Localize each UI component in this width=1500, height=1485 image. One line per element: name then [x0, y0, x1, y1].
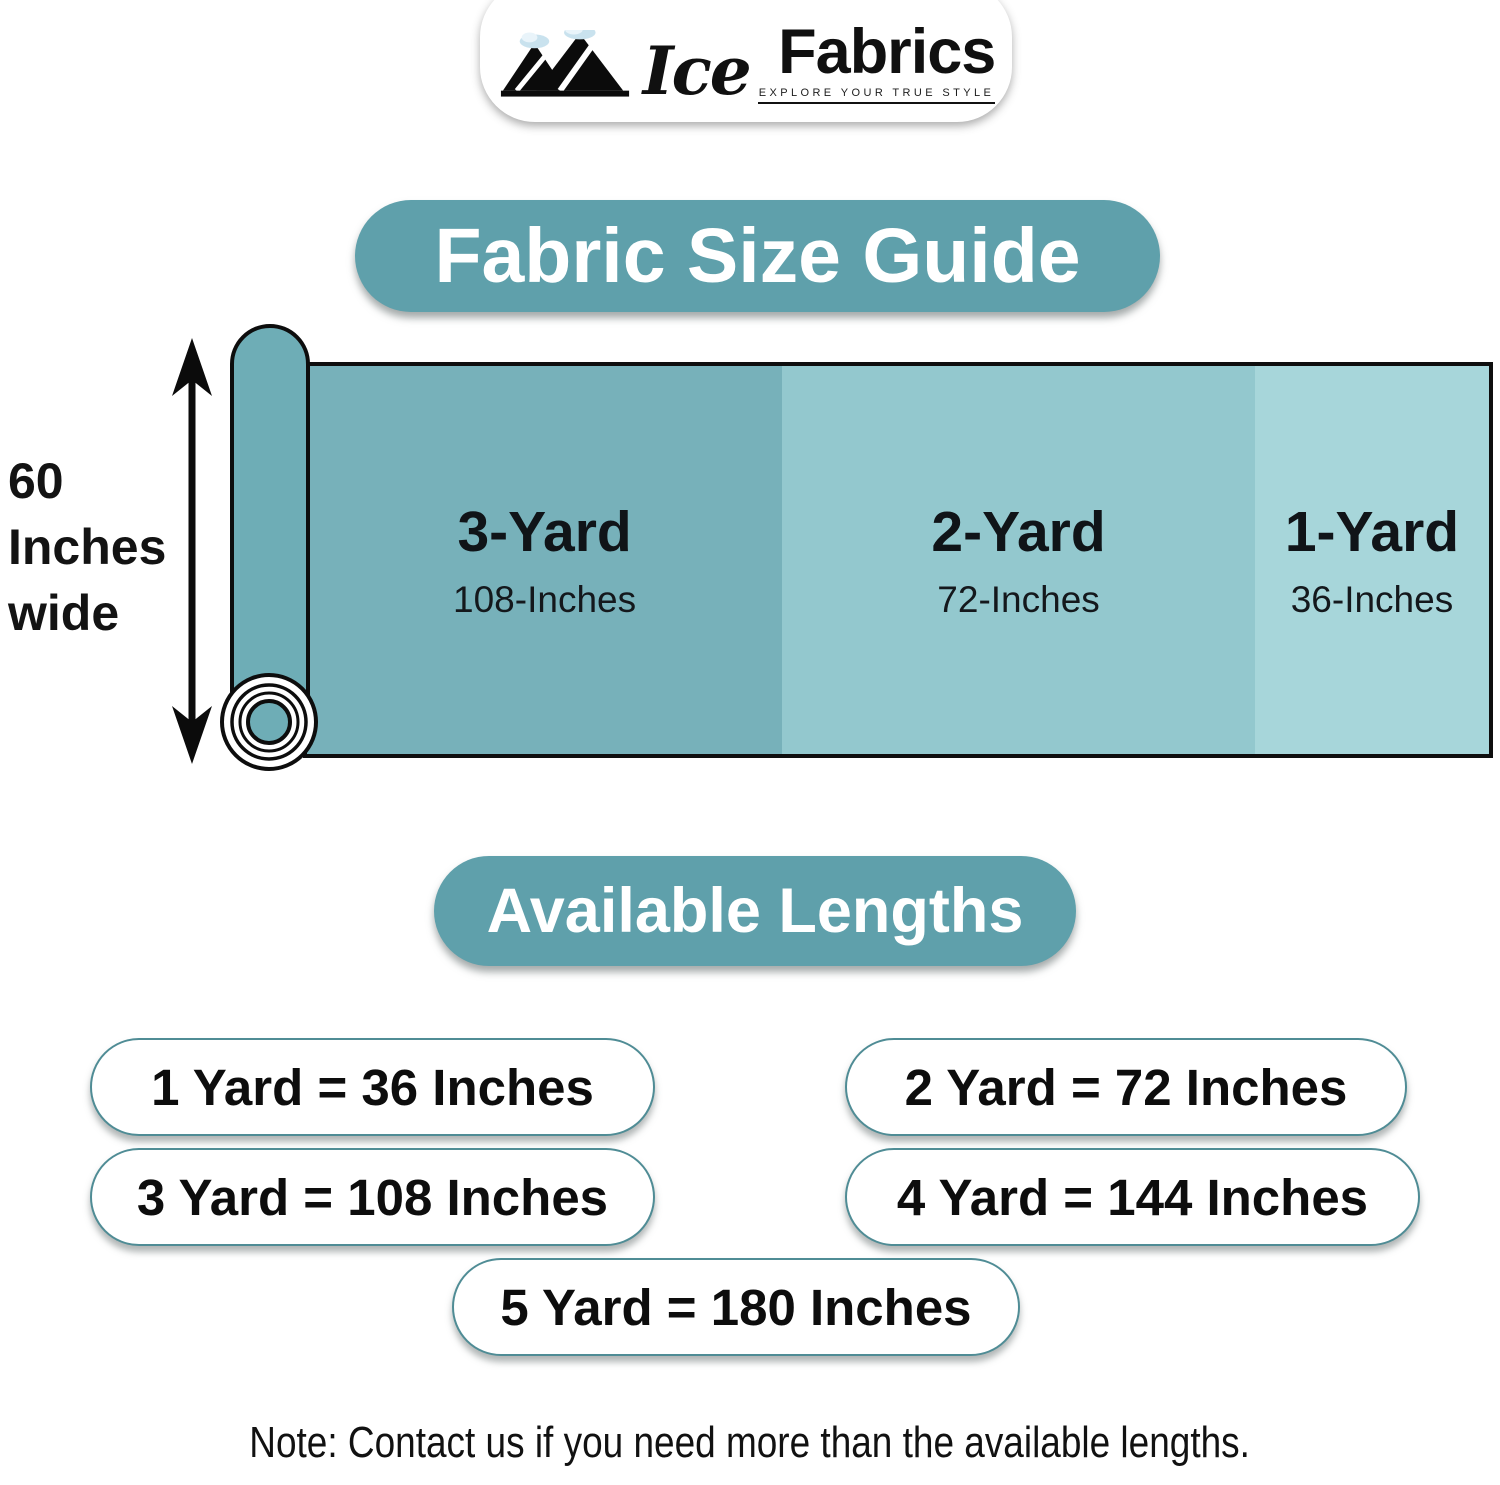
section-1-yard: 1-Yard 36-Inches [1255, 366, 1489, 754]
note-text: Note: Contact us if you need more than t… [0, 1418, 1500, 1468]
brand-tagline: EXPLORE YOUR TRUE STYLE [758, 85, 996, 104]
brand-word-ice: Ice [643, 38, 750, 104]
mountains-icon [497, 30, 635, 104]
section-2-yard-inches: 72-Inches [937, 579, 1100, 621]
length-pill-4-yard: 4 Yard = 144 Inches [845, 1148, 1420, 1246]
section-3-yard-label: 3-Yard [457, 499, 631, 565]
double-arrow-icon [169, 338, 215, 764]
fabric-roll-end-icon [216, 669, 322, 775]
section-3-yard: 3-Yard 108-Inches [307, 366, 782, 754]
section-2-yard-label: 2-Yard [931, 499, 1105, 565]
note-text-content: Note: Contact us if you need more than t… [250, 1418, 1251, 1468]
fabric-sheet: 3-Yard 108-Inches 2-Yard 72-Inches 1-Yar… [303, 362, 1493, 758]
available-lengths-title: Available Lengths [434, 856, 1076, 966]
page-title: Fabric Size Guide [355, 200, 1160, 312]
section-1-yard-inches: 36-Inches [1291, 579, 1454, 621]
brand-word-fabrics: Fabrics [778, 23, 995, 83]
length-pill-1-yard: 1 Yard = 36 Inches [90, 1038, 655, 1136]
fabric-size-guide-infographic: Ice Fabrics EXPLORE YOUR TRUE STYLE Fabr… [0, 0, 1500, 1485]
length-pill-3-yard: 3 Yard = 108 Inches [90, 1148, 655, 1246]
length-pill-5-yard: 5 Yard = 180 Inches [452, 1258, 1020, 1356]
section-2-yard: 2-Yard 72-Inches [782, 366, 1255, 754]
width-label-line2: Inches [8, 514, 166, 580]
fabric-width-label: 60 Inches wide [8, 448, 166, 646]
length-pill-2-yard: 2 Yard = 72 Inches [845, 1038, 1407, 1136]
section-1-yard-label: 1-Yard [1285, 499, 1459, 565]
width-label-line1: 60 [8, 448, 166, 514]
width-label-line3: wide [8, 580, 166, 646]
brand-logo: Ice Fabrics EXPLORE YOUR TRUE STYLE [480, 0, 1012, 122]
section-3-yard-inches: 108-Inches [453, 579, 636, 621]
